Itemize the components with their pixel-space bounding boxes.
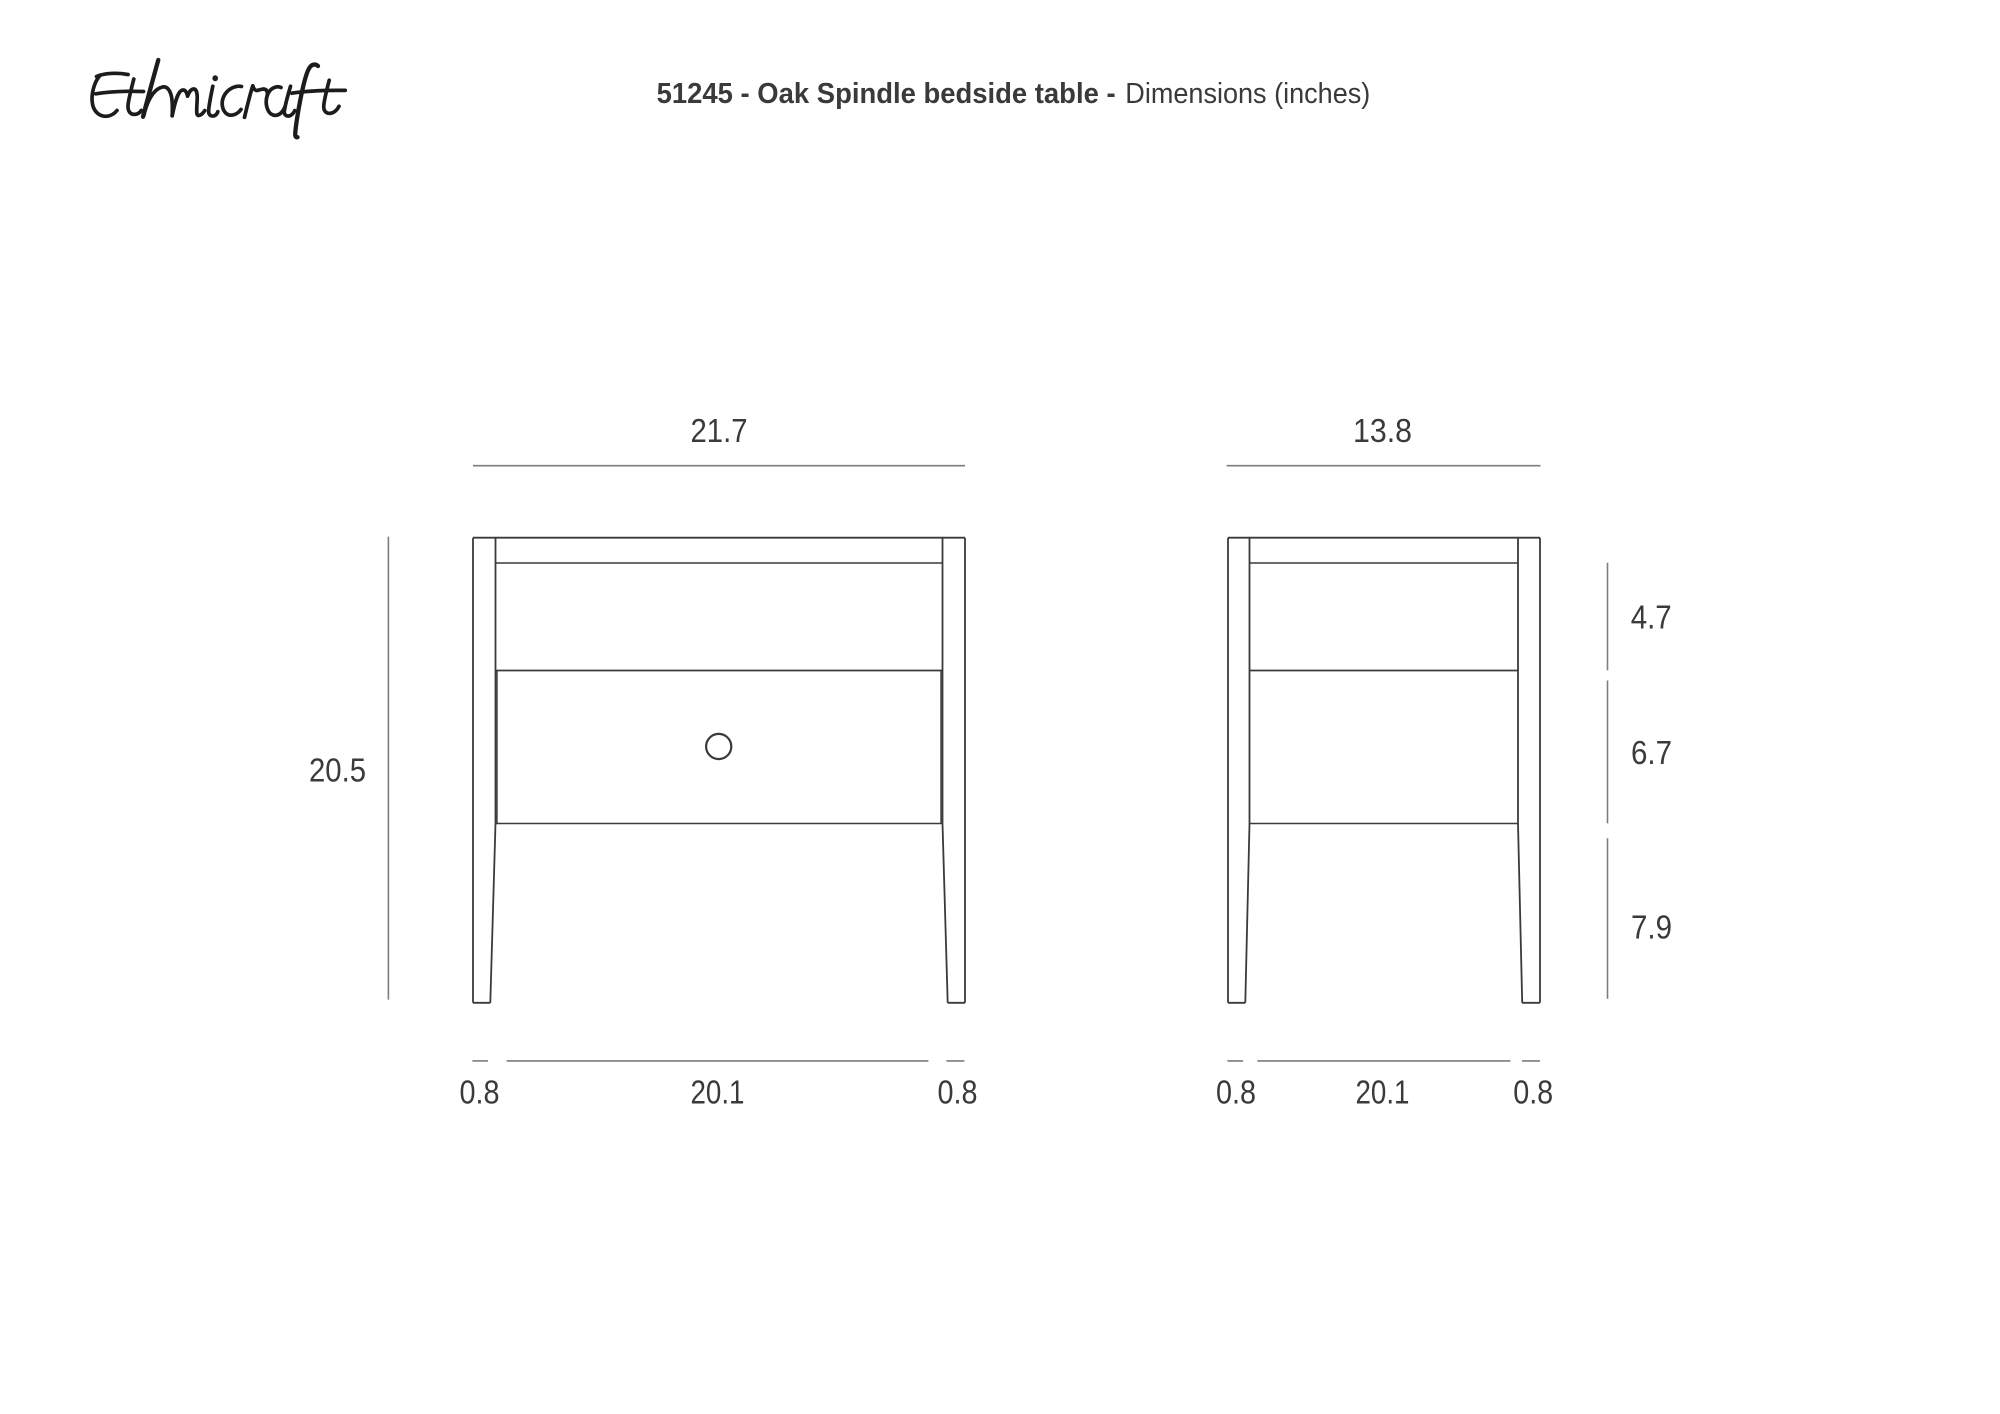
svg-text:7.9: 7.9 [1631,910,1672,947]
svg-text:0.8: 0.8 [938,1075,978,1112]
svg-text:0.8: 0.8 [1513,1075,1553,1112]
svg-text:0.8: 0.8 [460,1075,500,1112]
svg-text:20.1: 20.1 [1356,1075,1410,1112]
svg-text:20.1: 20.1 [691,1075,745,1112]
svg-text:4.7: 4.7 [1631,600,1672,637]
svg-text:13.8: 13.8 [1353,413,1412,450]
svg-text:21.7: 21.7 [691,413,748,450]
svg-text:Dimensions (inches): Dimensions (inches) [1125,78,1370,110]
svg-text:51245 - Oak Spindle bedside ta: 51245 - Oak Spindle bedside table - [657,78,1116,110]
svg-text:6.7: 6.7 [1631,735,1672,772]
svg-text:0.8: 0.8 [1216,1075,1256,1112]
svg-text:20.5: 20.5 [309,753,366,790]
